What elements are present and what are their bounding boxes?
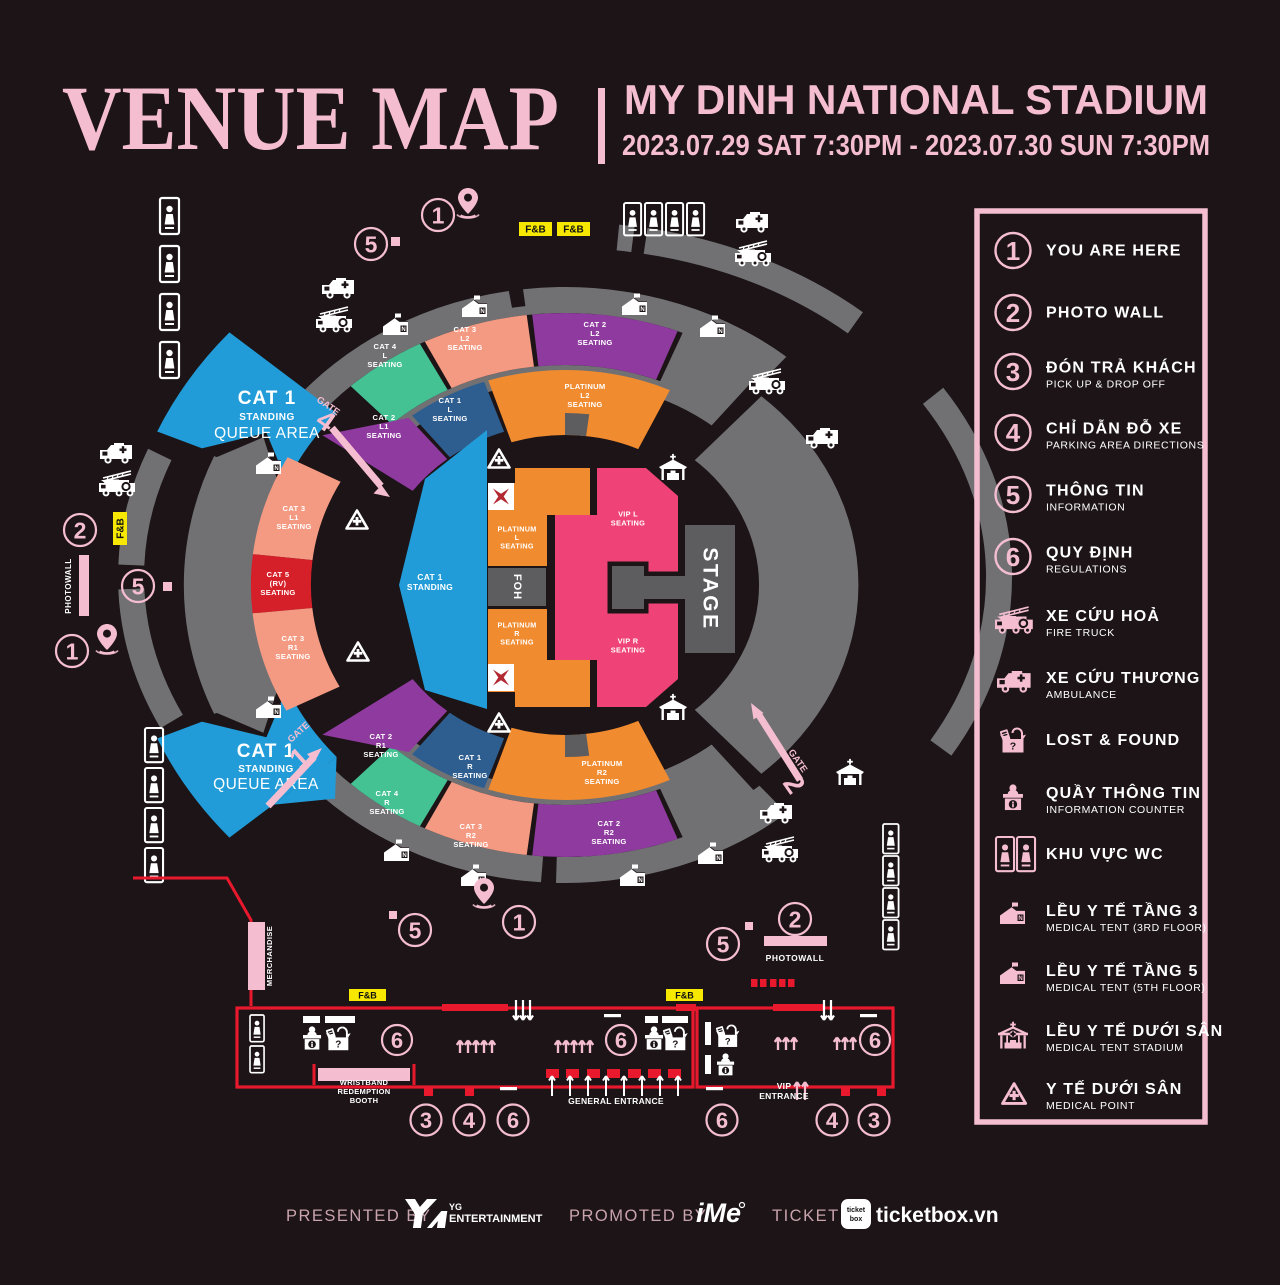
- svg-text:6: 6: [507, 1108, 519, 1133]
- svg-text:PICK UP & DROP OFF: PICK UP & DROP OFF: [1046, 379, 1166, 391]
- svg-text:2: 2: [789, 906, 802, 932]
- svg-text:YG: YG: [449, 1202, 462, 1212]
- svg-text:1: 1: [432, 202, 445, 228]
- svg-text:5: 5: [1006, 480, 1020, 510]
- svg-text:STAGE: STAGE: [699, 547, 722, 630]
- svg-text:5: 5: [409, 917, 422, 943]
- svg-text:PARKING AREA DIRECTIONS: PARKING AREA DIRECTIONS: [1046, 440, 1204, 452]
- svg-text:XE CỨU HOẢ: XE CỨU HOẢ: [1046, 606, 1160, 625]
- svg-text:PROMOTED BY: PROMOTED BY: [569, 1207, 707, 1225]
- svg-text:AMBULANCE: AMBULANCE: [1046, 689, 1117, 701]
- svg-text:MERCHANDISE: MERCHANDISE: [265, 926, 274, 986]
- svg-text:YOU ARE HERE: YOU ARE HERE: [1046, 243, 1182, 260]
- svg-text:KHU VỰC WC: KHU VỰC WC: [1046, 846, 1164, 863]
- svg-text:QUẦY THÔNG TIN: QUẦY THÔNG TIN: [1046, 783, 1201, 802]
- svg-text:QUEUE AREA: QUEUE AREA: [214, 425, 320, 442]
- svg-text:6: 6: [1006, 542, 1020, 572]
- svg-text:1: 1: [66, 638, 79, 664]
- svg-text:5: 5: [365, 231, 378, 257]
- svg-text:CHỈ DẪN ĐỖ XE: CHỈ DẪN ĐỖ XE: [1046, 419, 1183, 438]
- svg-text:STANDING: STANDING: [238, 764, 293, 775]
- svg-text:5: 5: [717, 931, 730, 957]
- svg-text:THÔNG TIN: THÔNG TIN: [1046, 481, 1145, 500]
- svg-text:2: 2: [74, 517, 87, 543]
- svg-text:3: 3: [420, 1108, 432, 1133]
- svg-text:MEDICAL POINT: MEDICAL POINT: [1046, 1100, 1135, 1112]
- svg-text:PHOTOWALL: PHOTOWALL: [64, 558, 73, 613]
- svg-text:MEDICAL TENT (5TH FLOOR): MEDICAL TENT (5TH FLOOR): [1046, 982, 1205, 994]
- svg-text:3: 3: [1006, 357, 1020, 387]
- svg-text:TICKET: TICKET: [772, 1207, 840, 1225]
- svg-text:6: 6: [615, 1028, 627, 1053]
- svg-text:MY DINH NATIONAL STADIUM: MY DINH NATIONAL STADIUM: [624, 76, 1208, 123]
- svg-text:GENERAL ENTRANCE: GENERAL ENTRANCE: [568, 1096, 664, 1106]
- svg-text:MEDICAL TENT (3RD FLOOR): MEDICAL TENT (3RD FLOOR): [1046, 922, 1207, 934]
- svg-text:REGULATIONS: REGULATIONS: [1046, 564, 1127, 576]
- svg-text:ticketbox.vn: ticketbox.vn: [876, 1204, 999, 1227]
- svg-text:XE CỨU THƯƠNG: XE CỨU THƯƠNG: [1046, 668, 1200, 687]
- svg-text:6: 6: [391, 1028, 403, 1053]
- svg-text:QUY ĐỊNH: QUY ĐỊNH: [1046, 545, 1134, 562]
- svg-text:6: 6: [716, 1108, 728, 1133]
- svg-text:4: 4: [1006, 418, 1021, 448]
- svg-text:5: 5: [132, 573, 145, 599]
- svg-text:STANDING: STANDING: [239, 412, 294, 423]
- svg-text:1: 1: [1006, 236, 1020, 266]
- svg-text:LỀU Y TẾ TẦNG 3: LỀU Y TẾ TẦNG 3: [1046, 901, 1199, 920]
- svg-text:PHOTO WALL: PHOTO WALL: [1046, 305, 1164, 322]
- svg-text:VENUE MAP: VENUE MAP: [62, 67, 559, 169]
- svg-text:1: 1: [513, 909, 526, 935]
- svg-text:box: box: [850, 1216, 863, 1223]
- svg-text:LỀU Y TẾ TẦNG 5: LỀU Y TẾ TẦNG 5: [1046, 961, 1199, 980]
- svg-text:2: 2: [1006, 298, 1020, 328]
- svg-text:QUEUE AREA: QUEUE AREA: [213, 776, 319, 793]
- svg-text:3: 3: [868, 1108, 880, 1133]
- svg-text:MEDICAL TENT STADIUM: MEDICAL TENT STADIUM: [1046, 1042, 1184, 1054]
- svg-text:2023.07.29 SAT 7:30PM - 2023.0: 2023.07.29 SAT 7:30PM - 2023.07.30 SUN 7…: [622, 130, 1210, 162]
- svg-text:CAT 1: CAT 1: [238, 388, 296, 409]
- svg-text:ticket: ticket: [847, 1207, 866, 1214]
- svg-text:FOH: FOH: [511, 574, 523, 600]
- svg-text:LOST & FOUND: LOST & FOUND: [1046, 732, 1180, 749]
- svg-text:4: 4: [826, 1108, 839, 1133]
- svg-text:F&B: F&B: [675, 991, 694, 1001]
- svg-text:PRESENTED BY: PRESENTED BY: [286, 1207, 431, 1225]
- svg-text:PHOTOWALL: PHOTOWALL: [766, 953, 825, 963]
- svg-text:INFORMATION: INFORMATION: [1046, 502, 1125, 514]
- svg-text:ENTERTAINMENT: ENTERTAINMENT: [449, 1213, 543, 1225]
- svg-text:Y TẾ DƯỚI SÂN: Y TẾ DƯỚI SÂN: [1046, 1079, 1182, 1098]
- svg-text:F&B: F&B: [358, 991, 377, 1001]
- svg-text:6: 6: [869, 1028, 881, 1053]
- svg-text:FIRE TRUCK: FIRE TRUCK: [1046, 627, 1115, 639]
- svg-text:ĐÓN TRẢ KHÁCH: ĐÓN TRẢ KHÁCH: [1046, 358, 1197, 377]
- svg-text:iMe: iMe: [696, 1198, 741, 1228]
- svg-text:INFORMATION COUNTER: INFORMATION COUNTER: [1046, 804, 1185, 816]
- svg-text:LỀU Y TẾ DƯỚI SÂN: LỀU Y TẾ DƯỚI SÂN: [1046, 1021, 1223, 1040]
- svg-text:4: 4: [463, 1108, 476, 1133]
